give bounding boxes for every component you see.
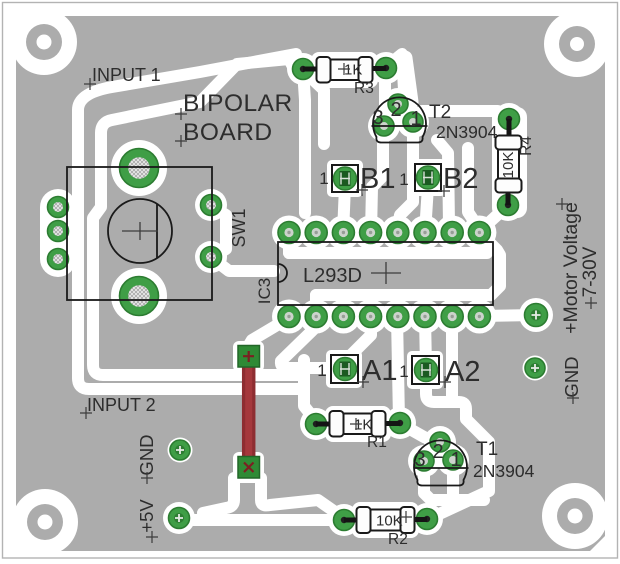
svg-text:2: 2 (432, 441, 443, 463)
svg-text:3: 3 (414, 449, 425, 471)
svg-text:GND: GND (136, 434, 157, 475)
svg-text:T1: T1 (476, 439, 498, 460)
svg-text:B2: B2 (443, 163, 478, 195)
svg-text:+Motor Voltage: +Motor Voltage (560, 202, 582, 334)
svg-text:1K: 1K (354, 417, 372, 434)
svg-text:1: 1 (410, 108, 421, 130)
svg-text:SW1: SW1 (229, 208, 249, 247)
svg-text:7-30V: 7-30V (580, 246, 601, 297)
svg-text:GND: GND (561, 356, 582, 397)
svg-text:1: 1 (319, 169, 328, 188)
svg-text:1: 1 (317, 361, 326, 380)
svg-text:2N3904: 2N3904 (473, 461, 535, 481)
svg-text:1: 1 (399, 362, 408, 381)
svg-text:2: 2 (390, 99, 401, 121)
svg-text:1K: 1K (344, 62, 362, 79)
svg-text:10K: 10K (500, 152, 517, 179)
svg-text:INPUT 1: INPUT 1 (92, 65, 161, 85)
svg-text:T2: T2 (429, 102, 451, 123)
svg-text:INPUT 2: INPUT 2 (87, 395, 156, 415)
svg-text:3: 3 (372, 107, 383, 129)
svg-text:2N3904: 2N3904 (436, 122, 498, 142)
svg-text:R4: R4 (518, 136, 535, 156)
svg-text:BOARD: BOARD (183, 119, 273, 146)
svg-text:IC3: IC3 (255, 278, 274, 304)
svg-text:A2: A2 (445, 356, 480, 388)
svg-text:+5V: +5V (136, 499, 157, 533)
svg-text:BIPOLAR: BIPOLAR (183, 90, 293, 117)
svg-text:R3: R3 (354, 80, 374, 97)
svg-text:R2: R2 (388, 531, 408, 548)
svg-text:1: 1 (450, 449, 461, 471)
svg-text:1: 1 (399, 170, 408, 189)
svg-text:10K: 10K (376, 513, 403, 530)
svg-text:R1: R1 (367, 434, 387, 451)
svg-text:L293D: L293D (303, 265, 362, 287)
